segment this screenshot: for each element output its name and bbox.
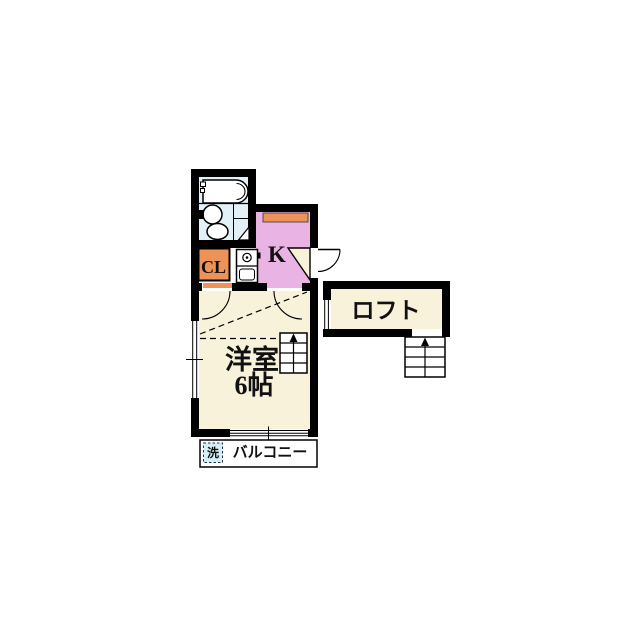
- floor-plan-drawing: 洋室 6帖 K CL ロフト バルコニー 洗: [0, 0, 640, 640]
- washer-label: 洗: [207, 445, 219, 460]
- closet-label: CL: [201, 257, 226, 277]
- kitchen-label: K: [268, 242, 286, 267]
- kitchen-sink-icon: [237, 250, 261, 283]
- loft-label: ロフト: [352, 298, 421, 323]
- toilet-icon: [207, 224, 228, 240]
- main-room-label-line2: 6帖: [234, 371, 273, 400]
- balcony-label: バルコニー: [233, 444, 308, 461]
- bathtub-icon: [201, 180, 249, 203]
- loft-ladder-icon: [280, 333, 307, 373]
- window-loft: [323, 300, 331, 329]
- kitchen-counter: [263, 213, 308, 222]
- loft-stairs-icon: [405, 337, 445, 377]
- closet-doorway-strip: [203, 283, 232, 288]
- floor-plan: 洋室 6帖 K CL ロフト バルコニー 洗: [0, 0, 640, 640]
